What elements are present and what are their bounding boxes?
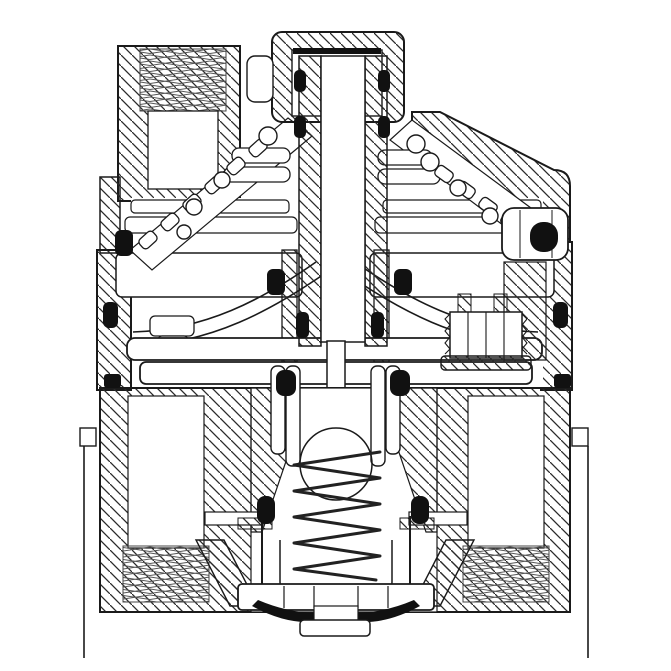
spring-ball [186,199,202,215]
top-port-bore [148,111,218,189]
top-port-threads [140,49,226,111]
stem-bore [321,56,365,342]
spring-ball [450,180,466,196]
outlet-port-threads [463,546,549,602]
right-tab [572,428,588,446]
o-ring-seal [267,269,285,295]
spring-ball [214,172,230,188]
o-ring-seal [115,230,133,256]
seat-guide-tab [300,620,370,636]
outlet-port [468,396,544,548]
spring-ball [259,127,277,145]
screenshot-frame [0,0,671,671]
o-ring-seal [294,70,306,92]
stem-wall [299,56,321,346]
o-ring-seal [411,496,429,524]
o-ring-seal [296,312,309,338]
valve-cross-section-diagram [0,0,671,671]
o-ring-seal [530,222,558,252]
o-ring-seal [553,302,568,328]
o-ring-seal [390,370,410,396]
o-ring-seal [378,70,390,92]
spring-ball [482,208,498,224]
left-tab [80,428,96,446]
diaphragm-bolt [150,316,194,336]
o-ring-seal [378,116,390,138]
o-ring-seal [104,374,121,388]
o-ring-seal [257,496,275,524]
cap-seal-band [293,48,381,54]
o-ring-seal [394,269,412,295]
stem-wall [365,56,387,346]
inlet-port-threads [123,546,209,602]
pilot-nub [458,294,471,312]
o-ring-seal [371,312,384,338]
o-ring-seal [276,370,296,396]
o-ring-seal [103,302,118,328]
spring-ball [177,225,191,239]
pilot-flange [441,356,531,370]
spring-ball [407,135,425,153]
o-ring-seal [294,116,306,138]
pilot-nub [494,294,507,312]
cap-step [247,56,273,102]
inlet-port [128,396,204,548]
spring-ball [421,153,439,171]
o-ring-seal [554,374,571,388]
